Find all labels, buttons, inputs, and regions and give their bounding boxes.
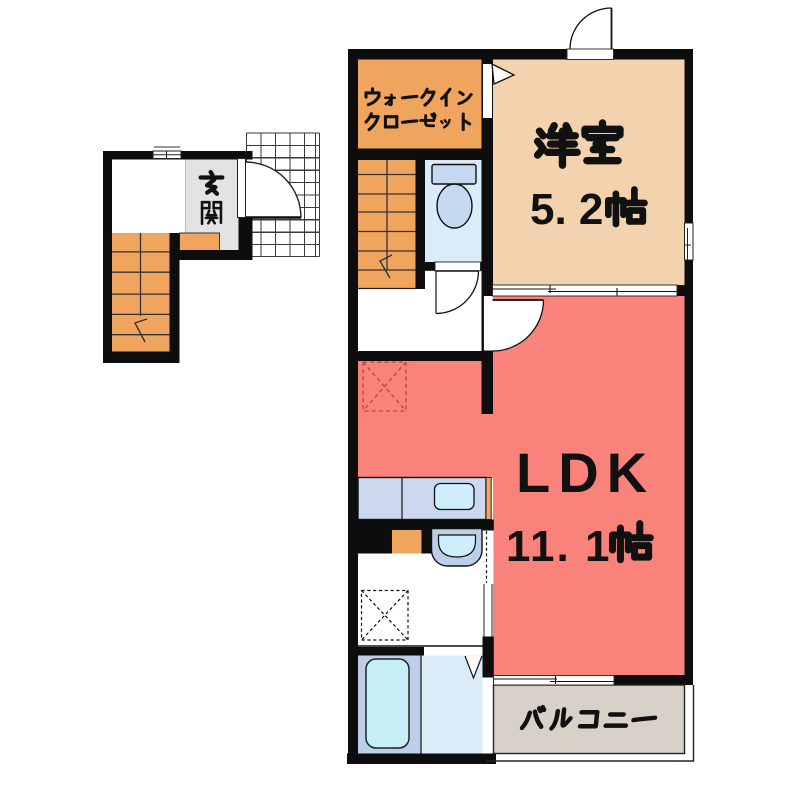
svg-text:5. 2: 5. 2 [530, 185, 603, 234]
svg-text:11. 1: 11. 1 [506, 522, 611, 571]
svg-text:LDK: LDK [516, 441, 655, 504]
